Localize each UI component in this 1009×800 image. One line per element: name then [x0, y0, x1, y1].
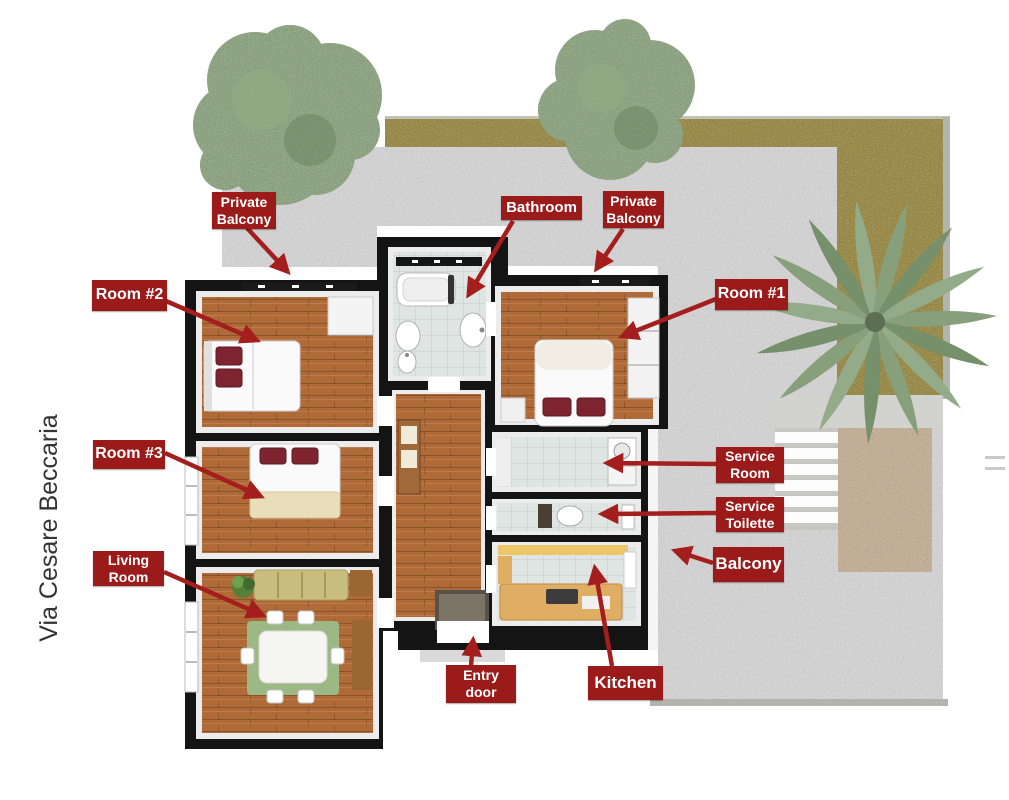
dining-table	[259, 631, 327, 683]
label-bathroom: Bathroom	[501, 196, 582, 220]
entry-door-opening	[437, 621, 489, 643]
outdoor-mat	[838, 428, 932, 572]
room-1-window	[580, 277, 650, 286]
kitchen-window	[624, 552, 636, 588]
label-kitchen: Kitchen	[588, 666, 663, 700]
label-private-balcony-left: Private Balcony	[212, 192, 276, 229]
room-3	[185, 441, 379, 559]
outdoor-landing	[775, 395, 943, 428]
room-1	[495, 277, 659, 426]
toilette-sink	[557, 506, 583, 526]
arrow-entry-door	[471, 641, 473, 666]
side-table	[350, 570, 372, 596]
bathtub	[397, 273, 455, 306]
nightstand	[501, 398, 525, 422]
service-counter	[497, 438, 511, 486]
private-balcony-left-floor	[222, 267, 377, 281]
room-2	[196, 282, 379, 433]
edge-marks	[985, 456, 1005, 470]
terrace-bottom-border	[650, 699, 948, 706]
kitchen-tray	[582, 596, 610, 609]
room-3-window	[185, 457, 198, 545]
kitchen-side-counter	[498, 556, 512, 584]
room-1-closet	[628, 298, 659, 398]
stove	[546, 589, 578, 604]
service-toilette	[492, 499, 641, 535]
washing-machine	[608, 438, 636, 464]
living-cabinet	[352, 620, 372, 690]
bidet	[398, 351, 416, 373]
hallway	[392, 390, 487, 628]
toilette-window	[622, 505, 634, 529]
room-2-bed	[204, 341, 300, 411]
entry-landing	[420, 650, 505, 662]
label-balcony: Balcony	[713, 547, 784, 582]
label-room-1: Room #1	[715, 279, 788, 310]
label-entry-door: Entry door	[446, 665, 516, 703]
kitchen-top-counter	[498, 545, 628, 555]
kitchen	[492, 542, 641, 626]
street-name: Via Cesare Beccaria	[33, 413, 65, 643]
room-2-closet	[328, 297, 373, 335]
room-3-bed	[250, 444, 340, 518]
arrow-service-room	[608, 463, 716, 464]
living-window	[185, 602, 198, 692]
bathroom-sink	[460, 313, 486, 347]
label-room-3: Room #3	[93, 440, 165, 469]
hall-shelf	[398, 420, 420, 494]
label-room-2: Room #2	[92, 280, 167, 311]
service-unit	[608, 466, 636, 485]
room-1-bed	[535, 340, 613, 426]
bathroom	[388, 247, 491, 381]
label-private-balcony-right: Private Balcony	[603, 191, 664, 228]
floor-plan-page: Private Balcony Bathroom Private Balcony…	[0, 0, 1009, 800]
toilette-door	[538, 504, 552, 528]
sofa	[254, 570, 348, 600]
label-service-room: Service Room	[716, 447, 784, 483]
stairs	[775, 428, 838, 530]
label-service-toilette: Service Toilette	[716, 497, 784, 532]
arrow-service-toilette	[603, 513, 716, 514]
label-living-room: Living Room	[93, 551, 164, 586]
